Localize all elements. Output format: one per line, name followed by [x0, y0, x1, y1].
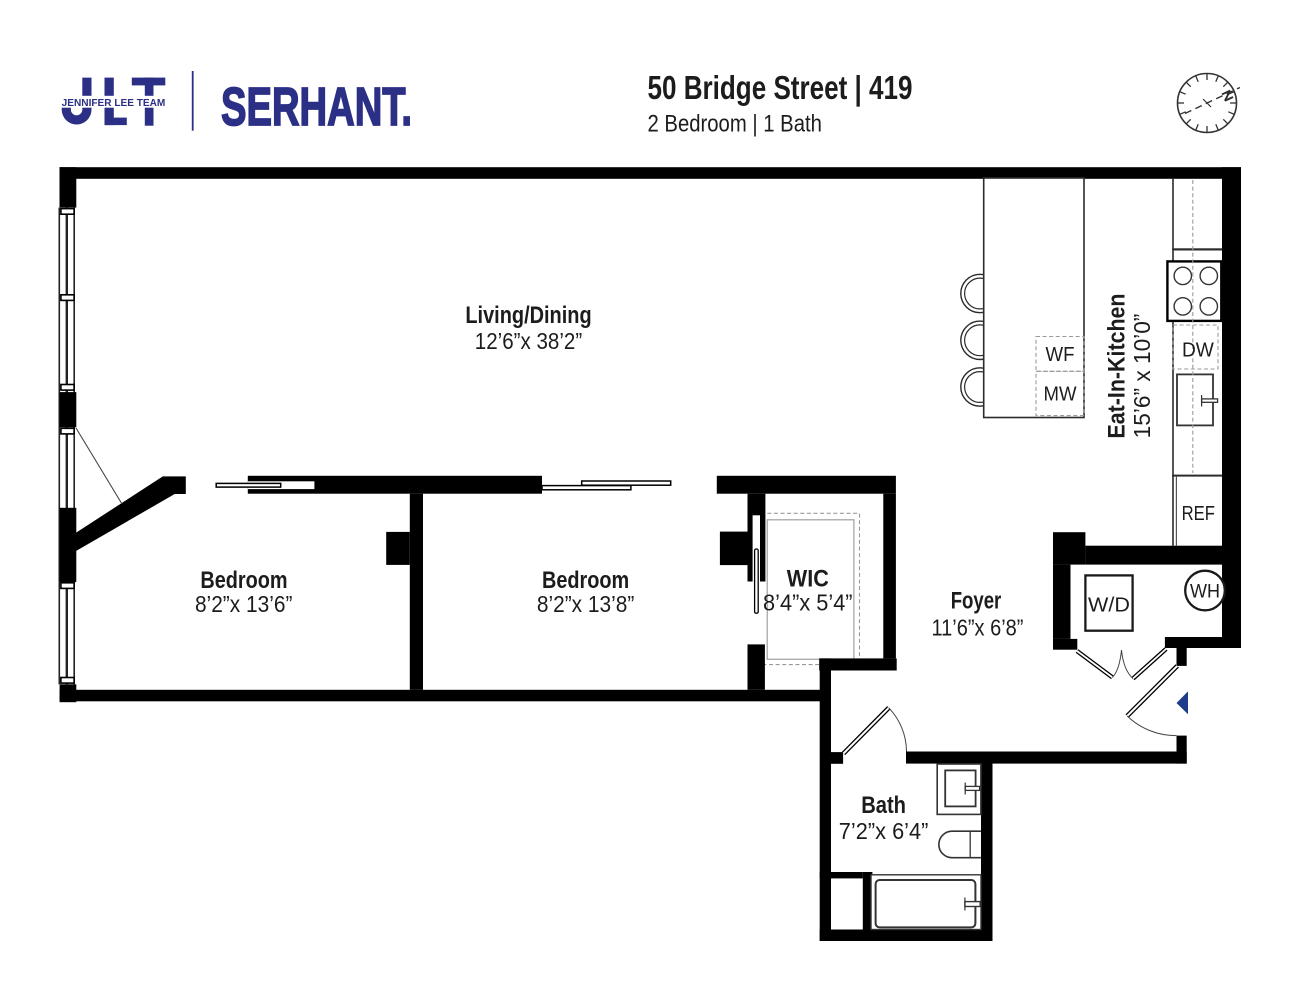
svg-text:12’6”x 38’2”: 12’6”x 38’2”	[475, 328, 582, 354]
svg-text:8’4”x 5’4”: 8’4”x 5’4”	[763, 590, 853, 616]
svg-text:2 Bedroom | 1 Bath: 2 Bedroom | 1 Bath	[648, 110, 822, 137]
svg-text:Living/Dining: Living/Dining	[465, 302, 591, 329]
svg-text:Eat-In-Kitchen: Eat-In-Kitchen	[1104, 294, 1131, 439]
svg-text:REF: REF	[1182, 503, 1215, 525]
svg-text:15’6” x 10’0”: 15’6” x 10’0”	[1129, 314, 1155, 439]
svg-text:WF: WF	[1046, 344, 1075, 366]
svg-text:11’6”x 6’8”: 11’6”x 6’8”	[932, 614, 1024, 640]
svg-text:WH: WH	[1190, 580, 1220, 602]
svg-text:8’2”x 13’6”: 8’2”x 13’6”	[195, 591, 293, 617]
svg-text:W/D: W/D	[1088, 594, 1130, 616]
svg-text:50 Bridge Street | 419: 50 Bridge Street | 419	[648, 69, 913, 106]
svg-text:SERHANT.: SERHANT.	[221, 77, 412, 137]
svg-text:Foyer: Foyer	[951, 587, 1002, 614]
svg-text:JENNIFER LEE TEAM: JENNIFER LEE TEAM	[62, 98, 166, 109]
svg-text:8’2”x 13’8”: 8’2”x 13’8”	[537, 591, 635, 617]
svg-text:MW: MW	[1044, 384, 1077, 406]
svg-text:7’2”x 6’4”: 7’2”x 6’4”	[839, 818, 929, 844]
svg-text:Bath: Bath	[861, 792, 906, 819]
svg-text:DW: DW	[1182, 340, 1214, 362]
svg-text:WIC: WIC	[787, 565, 829, 592]
